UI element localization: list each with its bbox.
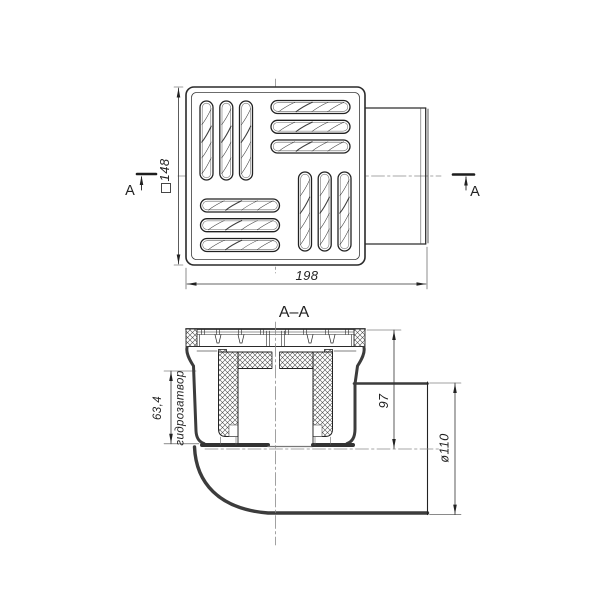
section-view: A–A [152, 304, 461, 545]
section-mark-left: A [125, 174, 156, 199]
section-title: A–A [279, 304, 310, 321]
dim-198-label: 198 [296, 268, 319, 283]
drain-slot [271, 101, 350, 114]
drain-slot [271, 120, 350, 133]
dim-97-label: 97 [377, 393, 391, 408]
drain-slot [200, 101, 213, 180]
dim-110-label: ø110 [438, 433, 452, 462]
section-letter-left: A [125, 183, 135, 199]
dim-axis-height: 97 [367, 330, 401, 449]
section-mark-right: A [453, 175, 480, 201]
top-view: 148 198 A A [125, 79, 480, 289]
dim-148-label: 148 [157, 158, 172, 181]
drain-slot [201, 239, 280, 252]
technical-drawing: 148 198 A A A–A [0, 0, 600, 600]
seal-text-label: гидрозатвор [175, 370, 187, 445]
drain-slot [240, 101, 253, 180]
dim-seal-height: 63,4 гидрозатвор [152, 370, 199, 445]
dim-634-label: 63,4 [152, 396, 164, 420]
section-letter-right: A [470, 184, 480, 200]
drain-slot [201, 219, 280, 232]
drawing-canvas: 148 198 A A A–A [0, 0, 600, 600]
dim-outlet-diameter: ø110 [430, 383, 462, 515]
drain-slot [201, 199, 280, 212]
square-symbol [162, 184, 171, 193]
drain-slot [220, 101, 233, 180]
drain-slot [318, 172, 331, 251]
drain-slot [299, 172, 312, 251]
drain-slot [338, 172, 351, 251]
drain-slot [271, 140, 350, 153]
